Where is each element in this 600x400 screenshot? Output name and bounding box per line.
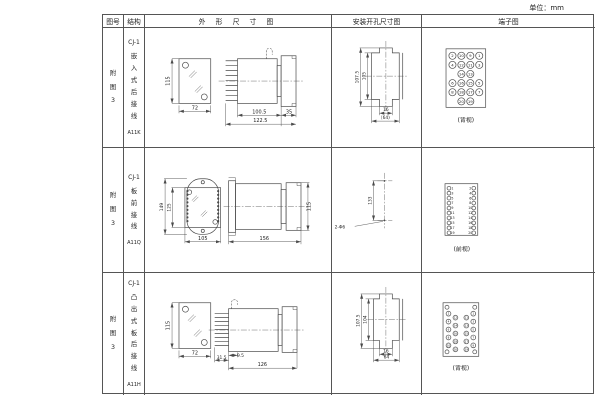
dim-tab-width: 16 — [383, 107, 389, 113]
relay-front-outline — [179, 59, 211, 104]
dim-body-depth: 100.5 — [252, 109, 266, 115]
outline-cell-row2: 149 125 105 156 115 — [145, 148, 332, 273]
mounting-cell-row1: 107.5 105 16 (64) — [332, 28, 422, 148]
terminal-pin-number: 17 — [465, 339, 469, 343]
outline-cell-row1: 115 72 100.5 35 122.5 — [145, 28, 332, 148]
dim-pin-depth: 31.5 — [217, 355, 227, 361]
structure-code: A11K — [127, 130, 140, 136]
dim-flange-depth: 35 — [286, 109, 292, 115]
corner-screw-icon — [201, 94, 207, 100]
terminal-pin-number: 10 — [468, 206, 472, 210]
terminal-pin-number: 3 — [451, 191, 453, 195]
view-caption: (背视) — [458, 116, 475, 124]
relay-front-outline — [185, 188, 221, 228]
terminal-pin-number: 11 — [450, 211, 454, 215]
dim-inner-height: 104 — [363, 315, 369, 324]
corner-screw-icon — [182, 62, 188, 68]
structure-type: 板前接线 — [131, 186, 138, 234]
terminal-pin-number: 7 — [478, 90, 481, 95]
terminal-pin-number: 9 — [451, 206, 453, 210]
terminal-pin — [447, 206, 451, 210]
structure-row2: CJ-1 板前接线 A11Q — [124, 148, 145, 273]
terminal-pin-number: 10 — [459, 53, 464, 58]
fig-no-row1: 附图3 — [103, 28, 124, 148]
extension-lines — [373, 181, 384, 221]
dim-hole-pitch: 133 — [368, 196, 374, 205]
terminal-pin-number: 1 — [478, 53, 481, 58]
outline-drawing-a11q: 149 125 105 156 115 — [145, 148, 331, 272]
outline-cell-row3: 115 72 31.5 9.5 126 — [145, 273, 332, 395]
model-label: CJ-1 — [128, 174, 140, 181]
cutout-outline — [374, 294, 400, 348]
latch-hook — [232, 300, 238, 309]
screw-hole — [473, 305, 477, 309]
terminal-pin-number: 11 — [465, 316, 469, 320]
mounting-plate-outline — [187, 179, 219, 235]
terminal-pins-row2: 1357911131517192468101214161820 — [447, 186, 476, 235]
mounting-cell-row2: 133 2-Φ6 — [332, 148, 422, 273]
terminal-pin-number: 14 — [454, 324, 458, 328]
terminal-pin — [472, 196, 476, 200]
structure-code: A11H — [127, 382, 141, 388]
screw-hole — [473, 350, 477, 354]
terminal-pin-number: 9 — [472, 343, 474, 347]
terminal-pin-number: 19 — [465, 347, 469, 351]
dim-outer-height: 107.5 — [354, 71, 360, 84]
terminal-pin-number: 1 — [472, 312, 474, 316]
terminal-pin-number: 10 — [447, 343, 451, 347]
mounting-cell-row3: 107.5 104 16 64 — [332, 273, 422, 395]
model-label: CJ-1 — [128, 280, 140, 287]
dim-side-depth: 156 — [260, 236, 269, 242]
dim-side-height: 115 — [307, 202, 313, 211]
terminal-cell-row1: 2109141211314136161558181772019 (背视) — [422, 28, 595, 148]
side-view: 156 115 — [224, 178, 313, 244]
fig-no-text: 附图3 — [110, 313, 117, 355]
terminal-pins — [226, 61, 238, 101]
dim-front-height: 115 — [166, 321, 172, 330]
terminal-pin-number: 13 — [450, 216, 454, 220]
terminal-pin-number: 5 — [472, 327, 474, 331]
dim-front-height: 115 — [166, 76, 172, 85]
terminal-pin-number: 4 — [448, 320, 450, 324]
hole-spec-label: 2-Φ6 — [335, 224, 346, 230]
ear-hole — [201, 229, 204, 232]
dim-span-width: (64) — [381, 115, 390, 121]
front-view: 115 72 — [166, 303, 211, 359]
terminal-cell-row2: 1357911131517192468101214161820 (前视) — [422, 148, 595, 273]
outline-drawing-a11h: 115 72 31.5 9.5 126 — [145, 273, 331, 394]
hole-mark — [384, 219, 386, 221]
terminal-pin-number: 20 — [454, 347, 458, 351]
terminal-pin-number: 2 — [448, 312, 450, 316]
terminal-pin-number: 2 — [451, 53, 454, 58]
dim-inner-height: 125 — [166, 203, 172, 212]
terminal-pin — [472, 191, 476, 195]
terminal-pin — [472, 216, 476, 220]
terminal-pin-number: 9 — [469, 53, 472, 58]
terminal-pin-number: 20 — [459, 99, 464, 104]
dim-total-depth: 122.5 — [253, 118, 267, 124]
view-caption: (前视) — [454, 245, 471, 253]
structure-row1: CJ-1 嵌入式后接线 A11K — [124, 28, 145, 148]
terminal-pin-number: 3 — [478, 62, 481, 67]
terminal-drawing-a11q: 1357911131517192468101214161820 (前视) — [422, 148, 594, 272]
terminal-pin-number: 7 — [451, 201, 453, 205]
terminal-pin — [472, 206, 476, 210]
terminal-pin-number: 19 — [450, 231, 454, 235]
terminal-pin-number: 6 — [448, 327, 450, 331]
terminal-pin-number: 5 — [478, 81, 481, 86]
terminal-pin — [472, 186, 476, 190]
terminal-pin-number: 12 — [459, 62, 464, 67]
terminal-pin — [472, 226, 476, 230]
terminal-pin — [447, 191, 451, 195]
view-caption: (背视) — [453, 364, 470, 372]
terminal-pin-number: 14 — [468, 216, 472, 220]
front-view: 149 125 105 — [159, 179, 221, 243]
terminal-pin-number: 5 — [451, 196, 453, 200]
terminal-pin-number: 12 — [454, 316, 458, 320]
unit-note: 单位：mm — [529, 3, 564, 13]
mounting-drawing-a11k: 107.5 105 16 (64) — [332, 28, 421, 147]
terminal-pin-number: 7 — [472, 335, 474, 339]
terminal-pin-number: 17 — [468, 90, 473, 95]
mounting-drawing-a11h: 107.5 104 16 64 — [332, 273, 421, 394]
terminal-pin-number: 3 — [472, 320, 474, 324]
header-outline-dims: 外 形 尺 寸 图 — [145, 15, 332, 28]
header-structure: 结构 — [124, 15, 145, 28]
terminal-pin-number: 8 — [469, 201, 471, 205]
glass-marks — [188, 315, 202, 337]
cutout-outline — [372, 48, 400, 106]
leader-line — [355, 221, 383, 226]
terminal-pin — [472, 231, 476, 235]
front-view: 115 72 — [166, 59, 211, 114]
terminal-pins — [215, 314, 229, 346]
terminal-pin — [447, 196, 451, 200]
terminal-pin-number: 19 — [468, 99, 473, 104]
terminal-pin-number: 16 — [468, 221, 472, 225]
terminal-pin — [447, 201, 451, 205]
outline-drawing-a11k: 115 72 100.5 35 122.5 — [145, 28, 331, 147]
drawing-table: 图号 结构 外 形 尺 寸 图 安装开孔尺寸图 端子图 附图3 CJ-1 嵌入式… — [102, 14, 594, 394]
dim-outer-height: 107.5 — [355, 314, 361, 327]
terminal-pin-number: 18 — [459, 90, 464, 95]
corner-screw-icon — [201, 339, 207, 345]
block-notches — [293, 307, 297, 353]
terminal-pin-number: 1 — [451, 186, 453, 190]
model-label: CJ-1 — [128, 39, 140, 46]
terminal-pin-number: 18 — [468, 226, 472, 230]
dim-front-width: 105 — [198, 236, 207, 242]
terminal-pins-row1: 2109141211314136161558181772019 — [449, 52, 483, 105]
relay-front-outline — [179, 303, 211, 349]
structure-type: 凸出式板后接线 — [131, 292, 138, 376]
terminal-pin-number: 15 — [468, 81, 473, 86]
terminal-pin-number: 11 — [468, 62, 473, 67]
terminal-pin-number: 16 — [454, 331, 458, 335]
terminal-pin-number: 18 — [454, 339, 458, 343]
terminal-pin — [472, 201, 476, 205]
terminal-pin-number: 6 — [451, 81, 454, 86]
terminal-pins-row3: 2468101214161820111315171913579 — [445, 305, 477, 354]
terminal-pin-number: 15 — [450, 221, 454, 225]
terminal-pin-number: 2 — [469, 186, 471, 190]
terminal-pin-number: 17 — [450, 226, 454, 230]
terminal-pin-number: 14 — [459, 71, 464, 76]
terminal-cell-row3: 2468101214161820111315171913579 (背视) — [422, 273, 595, 395]
terminal-pin-number: 12 — [468, 211, 472, 215]
dim-span-width: 64 — [384, 355, 390, 361]
corner-screw-icon — [182, 306, 188, 312]
terminal-pin-number: 16 — [459, 81, 464, 86]
screw-hole — [445, 305, 449, 309]
centerline-h — [377, 181, 392, 221]
terminal-pin-number: 4 — [451, 62, 454, 67]
terminal-pin-number: 13 — [468, 71, 473, 76]
hole-mark — [384, 180, 386, 182]
dim-inner-height: 105 — [362, 72, 368, 81]
glass-marks — [192, 196, 207, 217]
terminal-pin — [472, 211, 476, 215]
dim-tab-width: 16 — [383, 348, 389, 354]
side-view: 100.5 35 122.5 — [219, 48, 304, 126]
structure-row3: CJ-1 凸出式板后接线 A11H — [124, 273, 145, 395]
extension-lines — [215, 347, 297, 370]
latch-hook — [266, 48, 272, 58]
header-terminal-diagram: 端子图 — [422, 15, 595, 28]
terminal-pin-number: 6 — [469, 196, 471, 200]
fig-no-text: 附图3 — [110, 189, 117, 231]
structure-code: A11Q — [127, 240, 141, 246]
terminal-pin-number: 15 — [465, 331, 469, 335]
terminal-drawing-a11h: 2468101214161820111315171913579 (背视) — [422, 273, 594, 394]
terminal-pin-number: 13 — [465, 324, 469, 328]
ear-hole — [201, 181, 204, 184]
dim-offset-depth: 9.5 — [237, 353, 244, 359]
dim-body-depth: 126 — [258, 362, 267, 368]
structure-type: 嵌入式后接线 — [131, 51, 138, 123]
fig-no-row3: 附图3 — [103, 273, 124, 395]
terminal-pin-number: 4 — [469, 191, 471, 195]
dim-front-width: 72 — [192, 105, 198, 111]
dim-plate-height: 149 — [159, 203, 165, 212]
terminal-pin — [447, 186, 451, 190]
terminal-pin-number: 8 — [451, 90, 454, 95]
terminal-pin-number: 20 — [468, 231, 472, 235]
corner-screw-icon — [213, 220, 218, 225]
screw-hole — [445, 350, 449, 354]
rear-block — [282, 307, 297, 353]
terminal-pin — [472, 221, 476, 225]
header-fig-no: 图号 — [103, 15, 124, 28]
terminal-drawing-a11k: 2109141211314136161558181772019 (背视) — [422, 28, 594, 147]
side-view: 31.5 9.5 126 — [209, 300, 304, 370]
fig-no-text: 附图3 — [110, 67, 117, 109]
header-mounting-holes: 安装开孔尺寸图 — [332, 15, 422, 28]
glass-marks — [189, 71, 203, 93]
terminal-pin-number: 8 — [448, 335, 450, 339]
mounting-drawing-a11q: 133 2-Φ6 — [332, 148, 421, 272]
dim-front-width: 72 — [192, 350, 198, 356]
fig-no-row2: 附图3 — [103, 148, 124, 273]
